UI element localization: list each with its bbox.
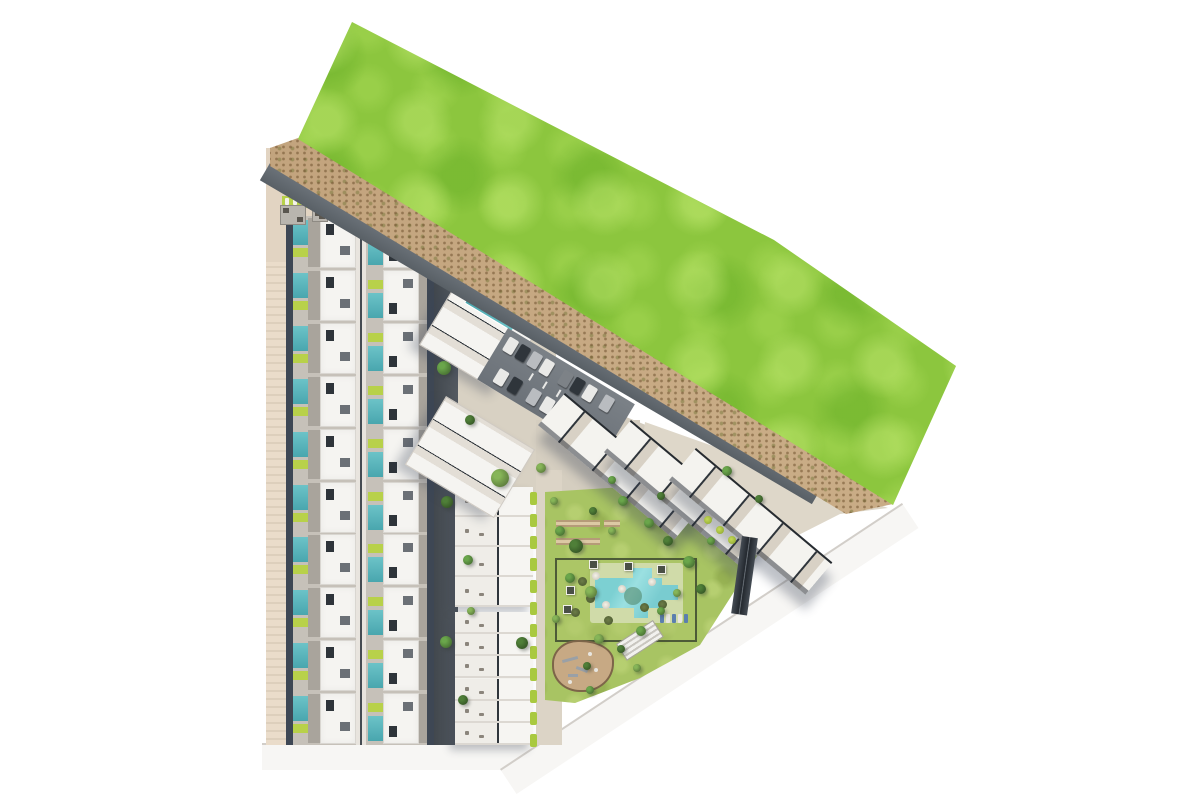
villa-row-part [293, 326, 308, 351]
terrace-furniture [465, 731, 469, 735]
tree [663, 536, 673, 546]
villa-row-part [326, 647, 334, 658]
sun-lounger [678, 614, 682, 623]
cabana [589, 560, 598, 569]
villa-row-part [360, 533, 362, 586]
villa-row-part [326, 700, 334, 711]
terrace-furniture [479, 713, 484, 716]
play-equipment [594, 668, 598, 672]
villa-row-part [308, 483, 320, 532]
villa-row-part [286, 375, 293, 428]
terrace-furniture [479, 593, 484, 596]
villa-row [286, 481, 434, 534]
tree [617, 645, 625, 653]
villa-row-part [368, 399, 383, 424]
villa-row-part [389, 567, 397, 578]
villa-row-part [286, 428, 293, 481]
villa-row-part [389, 409, 397, 420]
boundary-road-bottom [262, 743, 514, 770]
terrace-furniture [465, 620, 469, 624]
villa-row-part [427, 533, 434, 586]
tree [585, 586, 597, 598]
apartment-unit [455, 701, 533, 723]
villa-row [286, 269, 434, 322]
villa-row-part [368, 452, 383, 477]
villa-row-part [340, 458, 350, 467]
tree [491, 469, 509, 487]
tree [583, 662, 591, 670]
terrace-furniture [479, 668, 484, 671]
villa-row-part [293, 643, 308, 668]
villa-row-part [368, 610, 383, 635]
villa-row-part [368, 293, 383, 318]
tree [467, 607, 475, 615]
tree [683, 556, 695, 568]
tree [586, 686, 594, 694]
villa-row-part [360, 375, 362, 428]
villa-row-part [368, 386, 383, 395]
parasol-light [602, 601, 610, 609]
terrace-furniture [479, 735, 484, 738]
tree [555, 526, 565, 536]
parked-car [598, 394, 616, 413]
villa-row [286, 533, 434, 586]
terrace-furniture [479, 646, 484, 649]
tree [441, 496, 453, 508]
villa-row-part [286, 481, 293, 534]
villa-row [286, 375, 434, 428]
tree-canopy-shadow [624, 587, 642, 605]
tree [589, 507, 597, 515]
villa-row-part [293, 671, 308, 680]
villa-row-part [403, 332, 413, 341]
tree [636, 626, 646, 636]
sun-lounger [666, 614, 670, 623]
villa-row-part [368, 492, 383, 501]
villa-row-part [360, 586, 362, 639]
villa-row-part [368, 333, 383, 342]
villa-row-part [326, 541, 334, 552]
villa-row-part [293, 565, 308, 574]
villa-row-part [340, 669, 350, 678]
villa-row-part [368, 716, 383, 741]
townhouse-block [286, 216, 434, 745]
villa-row-part [427, 586, 434, 639]
villa-row-part [340, 352, 350, 361]
villa-row-part [293, 460, 308, 469]
tree [657, 492, 665, 500]
villa-row-part [360, 428, 362, 481]
villa-row-part [293, 513, 308, 522]
parasol-dark [640, 603, 649, 612]
villa-row-part [293, 696, 308, 721]
villa-row-part [403, 385, 413, 394]
villa-row-part [308, 430, 320, 479]
hedge [530, 536, 537, 549]
villa-row-part [389, 356, 397, 367]
villa-row-part [368, 597, 383, 606]
villa-row-part [389, 462, 397, 473]
villa-row-part [368, 557, 383, 582]
terrace-furniture [479, 691, 484, 694]
villa-row-part [389, 620, 397, 631]
tree [440, 636, 452, 648]
shrub [728, 536, 736, 544]
apartment-unit [455, 577, 533, 607]
villa-row-part [340, 722, 350, 731]
villa-row-part [326, 330, 334, 341]
villa-row-part [326, 277, 334, 288]
villa-row-part [340, 299, 350, 308]
terrace-furniture [465, 709, 469, 713]
parked-car [525, 387, 543, 406]
tree [608, 527, 616, 535]
villa-row-part [293, 537, 308, 562]
villa-row-part [368, 544, 383, 553]
villa-row-part [326, 489, 334, 500]
villa-row-part [326, 594, 334, 605]
cabana [566, 586, 575, 595]
terrace-furniture [465, 687, 469, 691]
parked-car [492, 368, 510, 387]
villa-row-part [403, 649, 413, 658]
villa-row-part [308, 271, 320, 320]
villa-row-part [308, 324, 320, 373]
hedge [530, 624, 537, 637]
apartment-unit [455, 723, 533, 745]
villa-row-part [403, 438, 413, 447]
sofa-cushion [283, 208, 289, 213]
villa-row-part [293, 590, 308, 615]
tree [536, 463, 546, 473]
terrace-furniture [465, 664, 469, 668]
villa-row-part [326, 383, 334, 394]
play-equipment [568, 680, 572, 684]
villa-row-part [403, 596, 413, 605]
sun-lounger [285, 198, 289, 205]
parasol-light [648, 578, 656, 586]
play-equipment [562, 656, 578, 663]
sofa-cushion [297, 217, 303, 222]
hedge [530, 690, 537, 703]
villa-row-part [389, 515, 397, 526]
villa-row-part [403, 702, 413, 711]
villa-row-part [286, 586, 293, 639]
lane-marking [542, 381, 548, 389]
villa-row-part [293, 407, 308, 416]
villa-row [286, 692, 434, 745]
villa-row-part [403, 543, 413, 552]
villa-row-part [340, 563, 350, 572]
hedge [530, 558, 537, 571]
villa-row-part [368, 439, 383, 448]
villa-row [286, 322, 434, 375]
tree [644, 518, 654, 528]
parasol-dark [578, 577, 587, 586]
villa-row-part [389, 726, 397, 737]
picnic-table [604, 520, 620, 527]
villa-row-part [368, 505, 383, 530]
villa-row-part [293, 354, 308, 363]
parasol-dark [604, 616, 613, 625]
cabana [657, 565, 666, 574]
parasol-dark [571, 608, 580, 617]
villa-row-part [427, 639, 434, 692]
play-equipment [568, 674, 578, 677]
tree [707, 537, 715, 545]
villa-row-part [308, 535, 320, 584]
villa-row-part [340, 511, 350, 520]
villa-row-part [308, 377, 320, 426]
cabana [624, 562, 633, 571]
mid-apartment-block [455, 612, 533, 745]
villa-row-part [293, 301, 308, 310]
villa-row-part [368, 280, 383, 289]
villa-row-part [308, 641, 320, 690]
tree [594, 634, 604, 644]
villa-row-part [293, 724, 308, 733]
villa-row-part [360, 639, 362, 692]
villa-row-part [360, 269, 362, 322]
hedge [530, 580, 537, 593]
villa-row-part [360, 481, 362, 534]
hedge [530, 492, 537, 505]
villa-row [286, 639, 434, 692]
lane-marking [528, 373, 534, 381]
terrace-furniture [465, 642, 469, 646]
tree [569, 539, 583, 553]
villa-row-part [293, 618, 308, 627]
villa-row-part [360, 692, 362, 745]
terrace-furniture [479, 563, 484, 566]
villa-row-part [286, 322, 293, 375]
parked-car [506, 376, 524, 395]
terrace-furniture [465, 589, 469, 593]
tree [657, 607, 665, 615]
villa-row-part [389, 673, 397, 684]
villa-row-part [340, 405, 350, 414]
villa-row-part [293, 248, 308, 257]
villa-row-part [293, 432, 308, 457]
villa-row-part [286, 533, 293, 586]
apartment-unit [455, 656, 533, 678]
terrace-furniture [479, 624, 484, 627]
villa-row-part [293, 273, 308, 298]
tree [516, 637, 528, 649]
villa-row-part [368, 346, 383, 371]
tree [608, 476, 616, 484]
tree [465, 415, 475, 425]
villa-row-part [308, 218, 320, 267]
terrace-furniture [479, 533, 484, 536]
villa-row-part [403, 279, 413, 288]
villa-row-part [403, 491, 413, 500]
villa-row-part [286, 269, 293, 322]
tree [618, 496, 628, 506]
villa-row-part [427, 692, 434, 745]
hedge [530, 646, 537, 659]
outdoor-sofa-set [280, 205, 306, 225]
shrub [716, 526, 724, 534]
tree [552, 615, 560, 623]
villa-row-part [340, 246, 350, 255]
tree [755, 495, 763, 503]
villa-row [286, 586, 434, 639]
villa-row-part [368, 650, 383, 659]
villa-row-part [286, 692, 293, 745]
villa-row-part [340, 616, 350, 625]
villa-row-part [286, 639, 293, 692]
tree [458, 695, 468, 705]
villa-row-part [326, 436, 334, 447]
tree [722, 466, 732, 476]
villa-row-part [293, 379, 308, 404]
sun-lounger [660, 614, 664, 623]
apartment-unit [455, 517, 533, 547]
villa-row-part [308, 588, 320, 637]
tree [696, 584, 706, 594]
tree [673, 589, 681, 597]
site-plan-scene [0, 0, 1200, 800]
tree [437, 361, 451, 375]
tree [550, 497, 558, 505]
villa-row-part [427, 481, 434, 534]
terrace-furniture [465, 529, 469, 533]
villa-row-part [326, 224, 334, 235]
hedge [530, 602, 537, 615]
hedge [530, 712, 537, 725]
sun-lounger-row [660, 614, 688, 623]
villa-row-part [389, 303, 397, 314]
parasol-light [592, 572, 600, 580]
tree [633, 664, 641, 672]
play-equipment [588, 652, 592, 656]
villa-row-part [308, 694, 320, 743]
sun-lounger [684, 614, 688, 623]
hedge [530, 514, 537, 527]
villa-row-part [368, 703, 383, 712]
tree [463, 555, 473, 565]
hedge [530, 734, 537, 747]
villa-row-part [293, 485, 308, 510]
tree [565, 573, 575, 583]
sun-lounger [672, 614, 676, 623]
hedge [530, 668, 537, 681]
villa-row-part [360, 322, 362, 375]
villa-row-part [368, 663, 383, 688]
shrub [704, 516, 712, 524]
apartment-unit [455, 612, 533, 634]
